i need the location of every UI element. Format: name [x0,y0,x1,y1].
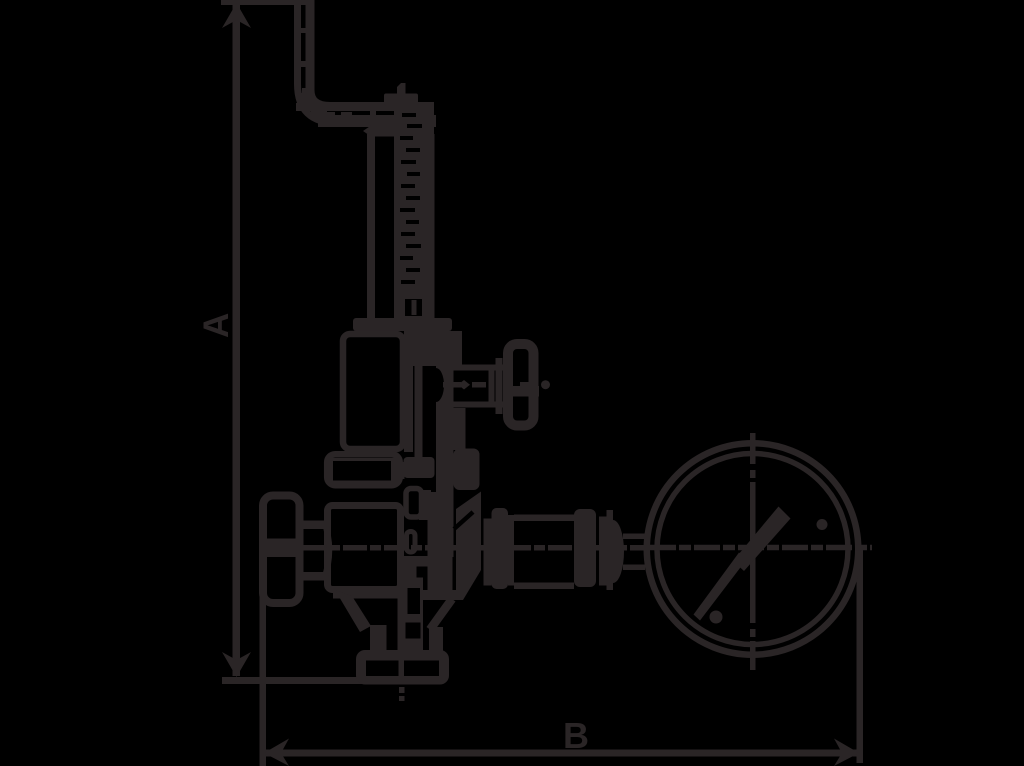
svg-text:A: A [197,313,236,338]
svg-text:B: B [563,715,589,756]
